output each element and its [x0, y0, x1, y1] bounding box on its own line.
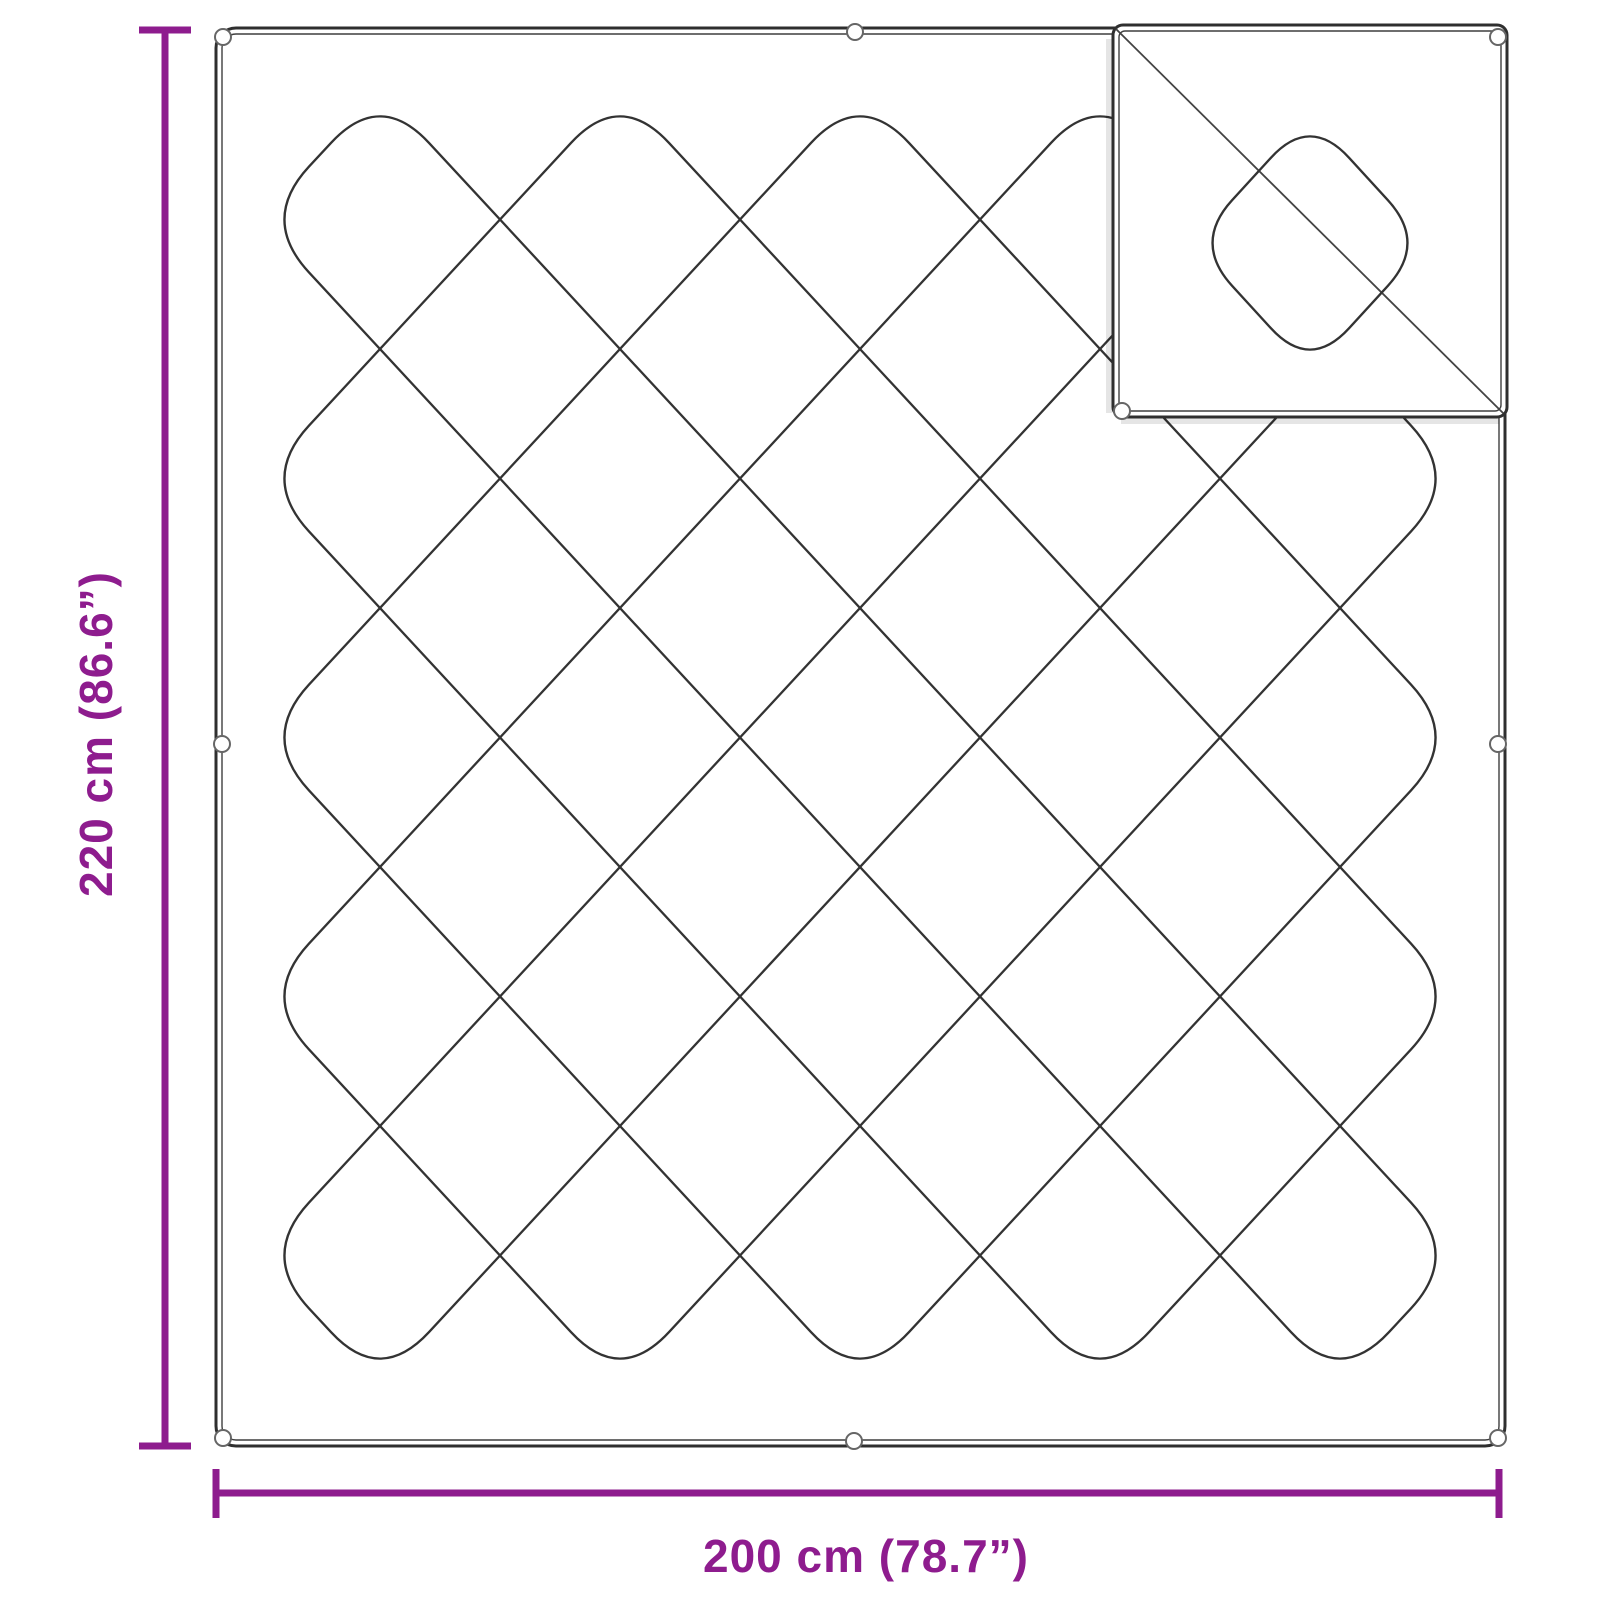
- height-dimension: 220 cm (86.6”): [70, 27, 191, 1449]
- grommet-eyelet-icon: [1114, 403, 1130, 419]
- grommet-eyelet-icon: [214, 736, 230, 752]
- grommet-eyelet-icon: [215, 1430, 231, 1446]
- width-dimension-label: 200 cm (78.7”): [703, 1530, 1029, 1582]
- grommet-eyelet-icon: [1490, 1430, 1506, 1446]
- width-dimension: 200 cm (78.7”): [216, 1469, 1499, 1582]
- grommet-eyelet-icon: [215, 29, 231, 45]
- height-dimension-label: 220 cm (86.6”): [70, 571, 122, 897]
- grommet-eyelet-icon: [1490, 736, 1506, 752]
- diagram-stage: 220 cm (86.6”) 200 cm (78.7”): [0, 0, 1600, 1600]
- blanket-dimension-diagram: 220 cm (86.6”) 200 cm (78.7”): [0, 0, 1600, 1600]
- folded-corner-flap: [1109, 25, 1507, 421]
- grommet-eyelet-icon: [846, 1433, 862, 1449]
- grommet-eyelet-icon: [1490, 29, 1506, 45]
- grommet-eyelet-icon: [847, 24, 863, 40]
